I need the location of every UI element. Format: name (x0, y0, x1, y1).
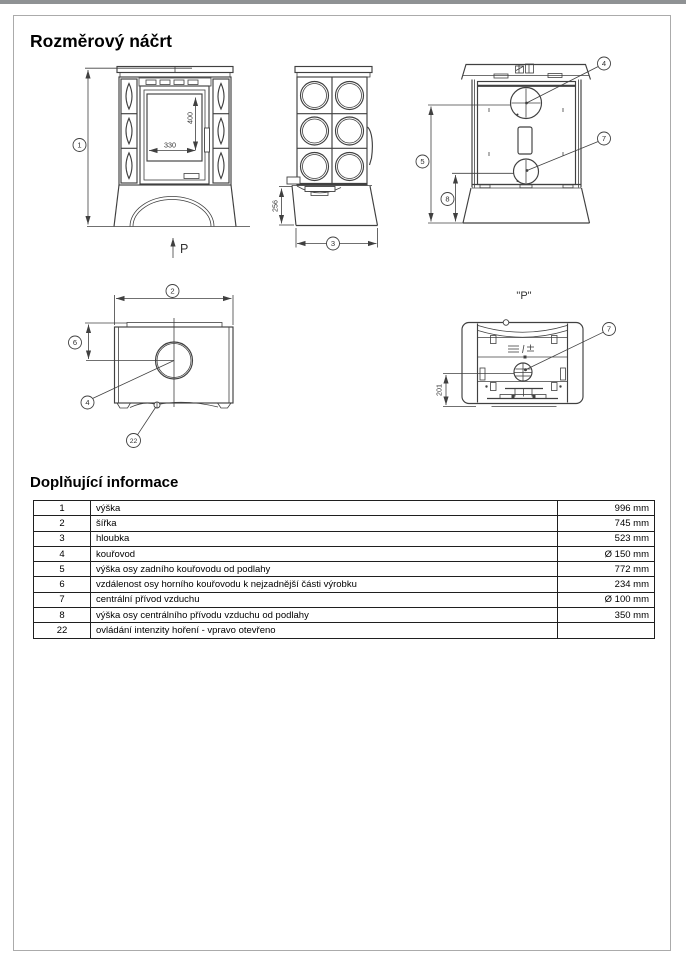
row-value: 523 mm (558, 531, 655, 546)
table-row: 8 výška osy centrálního přívodu vzduchu … (34, 608, 655, 623)
row-label: šířka (91, 516, 558, 531)
row-number: 6 (34, 577, 91, 592)
row-number: 7 (34, 592, 91, 607)
bottom-view (443, 320, 603, 407)
row-number: 8 (34, 608, 91, 623)
svg-text:5: 5 (420, 157, 424, 166)
additional-info-table: 1 výška 996 mm 2 šířka 745 mm 3 hloubka … (33, 500, 655, 639)
svg-text:4: 4 (85, 398, 89, 407)
table-row: 22 ovládání intenzity hoření - vpravo ot… (34, 623, 655, 638)
table-row: 5 výška osy zadního kouřovodu od podlahy… (34, 562, 655, 577)
row-label: výška osy centrálního přívodu vzduchu od… (91, 608, 558, 623)
front-door-height-dim: 400 (186, 112, 195, 124)
row-number: 1 (34, 501, 91, 516)
row-label: ovládání intenzity hoření - vpravo otevř… (91, 623, 558, 638)
row-value: 996 mm (558, 501, 655, 516)
svg-text:7: 7 (602, 134, 606, 143)
side-base-height-dim: 256 (271, 200, 280, 212)
table-row: 6 vzdálenost osy horního kouřovodu k nej… (34, 577, 655, 592)
row-number: 2 (34, 516, 91, 531)
callout-8-air-height: 8 (441, 193, 454, 206)
callout-7-air-inlet: 7 (598, 132, 611, 145)
table-row: 7 centrální přívod vzduchu Ø 100 mm (34, 592, 655, 607)
callout-6-flue-offset: 6 (69, 336, 82, 349)
callout-2-width: 2 (166, 285, 179, 298)
callout-3-depth: 3 (327, 237, 340, 250)
callout-1-height: 1 (73, 139, 86, 152)
row-value: 772 mm (558, 562, 655, 577)
table-row: 2 šířka 745 mm (34, 516, 655, 531)
row-number: 4 (34, 546, 91, 561)
row-label: hloubka (91, 531, 558, 546)
bottom-view-label: "P" (516, 290, 531, 302)
row-value: 234 mm (558, 577, 655, 592)
row-label: centrální přívod vzduchu (91, 592, 558, 607)
svg-text:3: 3 (331, 239, 335, 248)
table-row: 3 hloubka 523 mm (34, 531, 655, 546)
row-label: kouřovod (91, 546, 558, 561)
table-row: 4 kouřovod Ø 150 mm (34, 546, 655, 561)
svg-text:6: 6 (73, 338, 77, 347)
callout-4-flue: 4 (598, 57, 611, 70)
row-label: výška osy zadního kouřovodu od podlahy (91, 562, 558, 577)
svg-text:22: 22 (130, 438, 138, 445)
row-value (558, 623, 655, 638)
front-view (85, 67, 250, 259)
callout-5-flue-height: 5 (416, 155, 429, 168)
svg-text:7: 7 (607, 325, 611, 334)
row-label: vzdálenost osy horního kouřovodu k nejza… (91, 577, 558, 592)
dimensional-sketch: 330 400 P 1 (13, 55, 673, 470)
svg-text:1: 1 (77, 141, 81, 150)
row-number: 3 (34, 531, 91, 546)
row-number: 5 (34, 562, 91, 577)
bottom-air-distance-dim: 201 (435, 384, 444, 396)
screen-top-edge (0, 0, 686, 4)
front-door-width-dim: 330 (164, 141, 176, 150)
row-label: výška (91, 501, 558, 516)
top-view (85, 295, 233, 435)
row-value: 745 mm (558, 516, 655, 531)
row-number: 22 (34, 623, 91, 638)
svg-text:4: 4 (602, 59, 606, 68)
page-title: Rozměrový náčrt (30, 31, 172, 52)
table-row: 1 výška 996 mm (34, 501, 655, 516)
section-title: Doplňující informace (30, 474, 178, 491)
svg-text:2: 2 (170, 287, 174, 296)
push-direction-label: P (180, 242, 188, 256)
row-value: 350 mm (558, 608, 655, 623)
row-value: Ø 150 mm (558, 546, 655, 561)
callout-22-control: 22 (127, 434, 141, 448)
row-value: Ø 100 mm (558, 592, 655, 607)
svg-text:8: 8 (445, 195, 449, 204)
callout-7-air-inlet-bottom: 7 (603, 323, 616, 336)
callout-4-flue-top: 4 (81, 396, 94, 409)
side-view (279, 67, 378, 248)
